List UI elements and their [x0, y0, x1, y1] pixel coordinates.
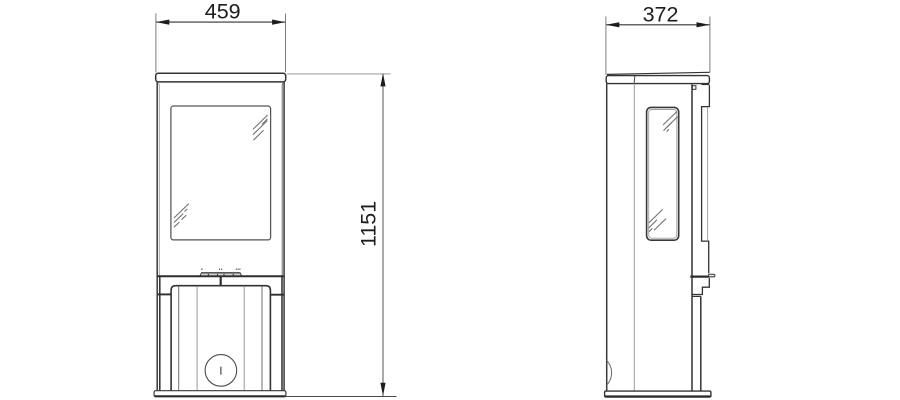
svg-text:459: 459	[205, 0, 241, 24]
svg-text:1151: 1151	[357, 201, 381, 247]
svg-text:372: 372	[643, 2, 679, 26]
